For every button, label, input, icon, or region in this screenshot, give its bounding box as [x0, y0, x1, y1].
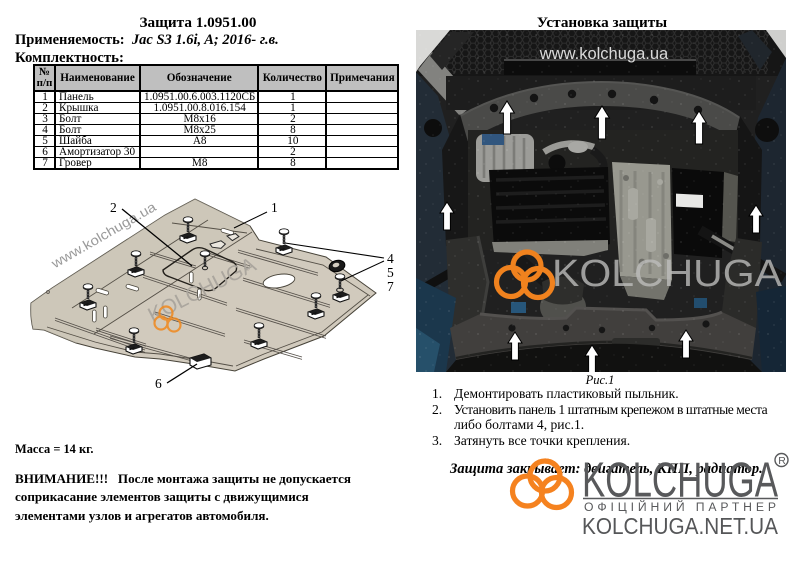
svg-text:4: 4	[387, 251, 394, 266]
svg-text:1: 1	[271, 200, 278, 215]
svg-text:KOLCHUGA.NET.UA: KOLCHUGA.NET.UA	[582, 513, 778, 539]
svg-text:ОФІЦІЙНИЙ ПАРТНЕР: ОФІЦІЙНИЙ ПАРТНЕР	[584, 499, 776, 514]
svg-text:7: 7	[387, 279, 394, 294]
svg-text:®: ®	[244, 264, 250, 273]
svg-text:KOLCHUGA: KOLCHUGA	[552, 253, 783, 295]
svg-text:5: 5	[387, 265, 394, 280]
svg-text:2: 2	[110, 200, 117, 215]
svg-text:R: R	[778, 455, 786, 467]
svg-text:6: 6	[155, 376, 162, 391]
